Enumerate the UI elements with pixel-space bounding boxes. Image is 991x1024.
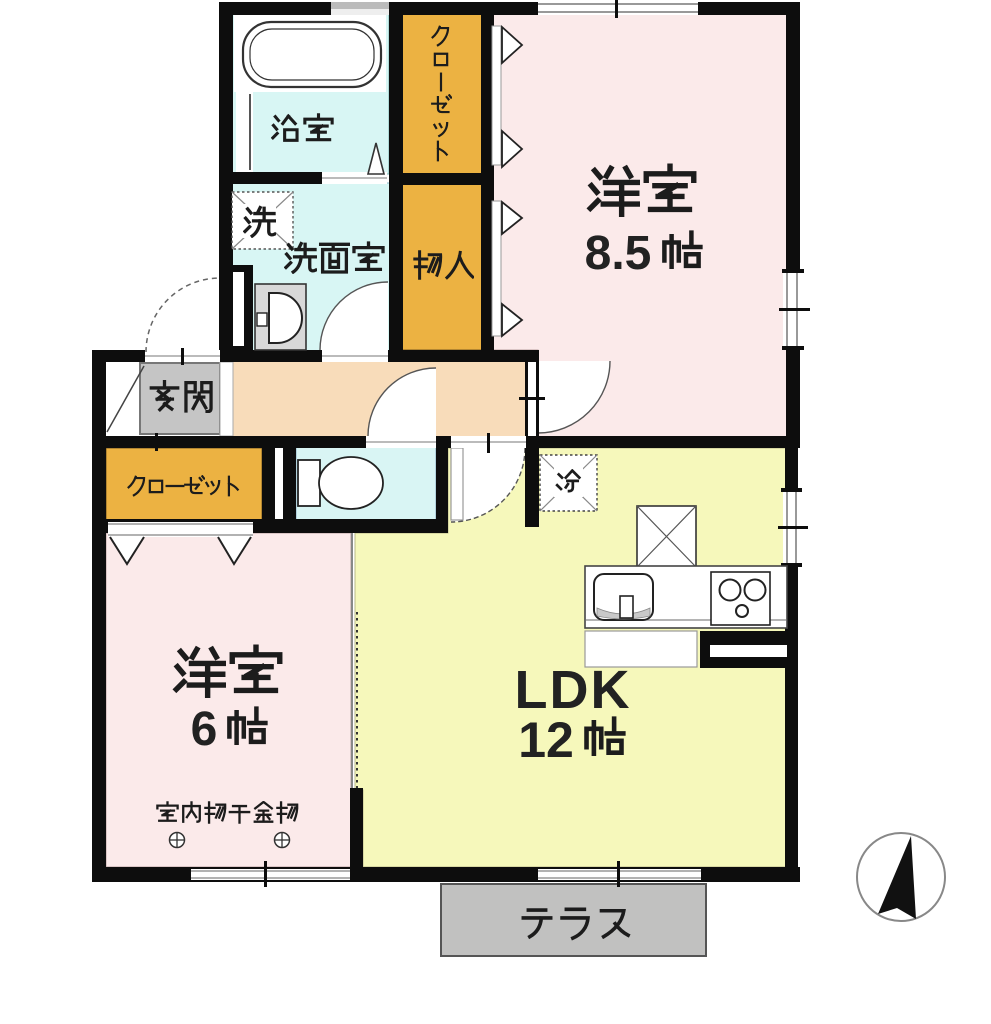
svg-text:8.5: 8.5 — [585, 227, 652, 280]
svg-text:LDK: LDK — [515, 660, 632, 720]
svg-text:6: 6 — [191, 703, 218, 756]
svg-text:12: 12 — [518, 712, 574, 768]
